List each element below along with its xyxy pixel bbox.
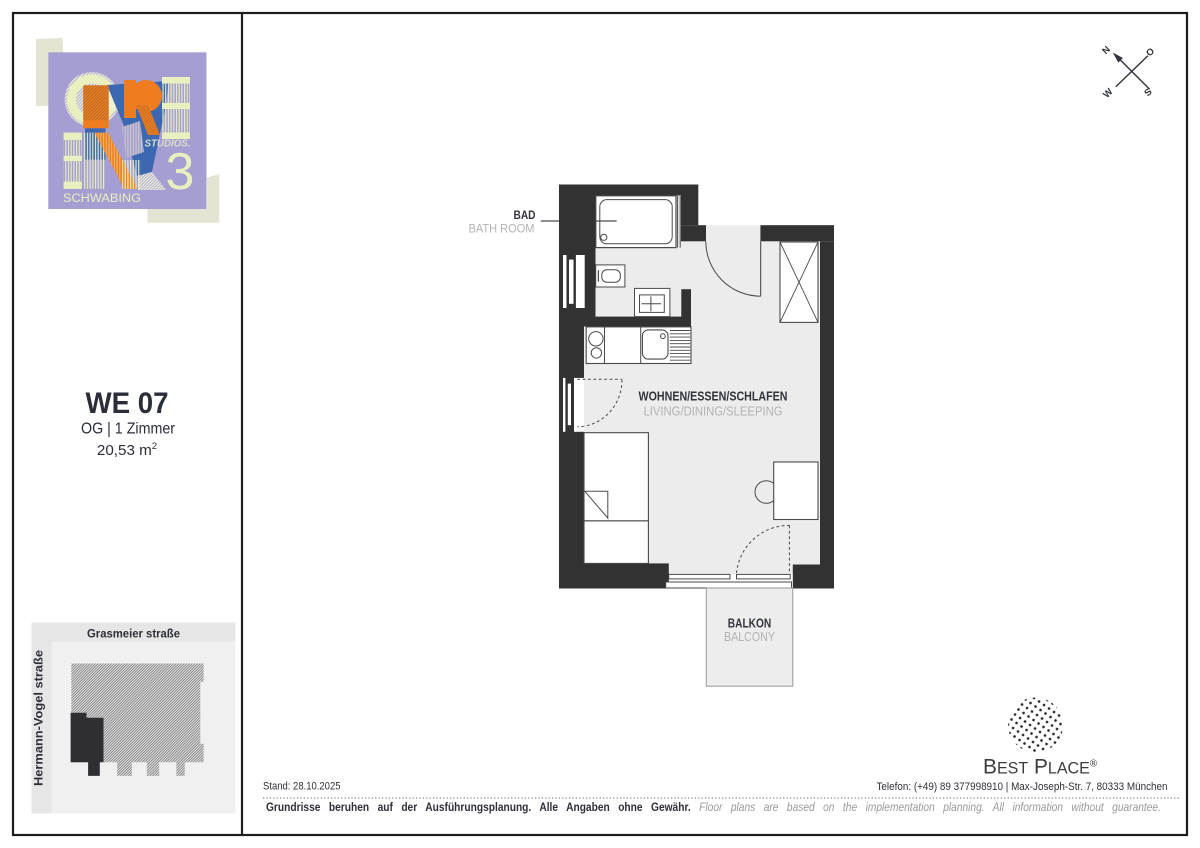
svg-text:SCHWABING: SCHWABING (63, 191, 141, 205)
svg-text:20,53 m2: 20,53 m2 (97, 441, 157, 459)
svg-text:BAD: BAD (514, 208, 536, 222)
svg-text:3: 3 (166, 143, 195, 201)
svg-text:WOHNEN/ESSEN/SCHLAFEN: WOHNEN/ESSEN/SCHLAFEN (639, 390, 788, 404)
svg-text:S: S (1142, 87, 1154, 99)
svg-text:N: N (1100, 44, 1113, 57)
svg-text:Hermann-Vogel straße: Hermann-Vogel straße (32, 650, 46, 786)
svg-text:WE 07: WE 07 (86, 387, 169, 420)
svg-text:Grasmeier straße: Grasmeier straße (87, 627, 180, 641)
svg-text:Telefon: (+49) 89 377998910 |: Telefon: (+49) 89 377998910 | Max-Joseph… (877, 781, 1168, 793)
svg-text:OG | 1 Zimmer: OG | 1 Zimmer (81, 421, 175, 438)
svg-text:Stand: 28.10.2025: Stand: 28.10.2025 (263, 781, 341, 793)
svg-text:BEST PLACE®: BEST PLACE® (983, 755, 1098, 779)
svg-text:LIVING/DINING/SLEEPING: LIVING/DINING/SLEEPING (644, 405, 783, 419)
svg-text:BALCONY: BALCONY (724, 629, 775, 644)
svg-text:W: W (1101, 86, 1115, 100)
svg-text:BATH ROOM: BATH ROOM (469, 222, 535, 236)
